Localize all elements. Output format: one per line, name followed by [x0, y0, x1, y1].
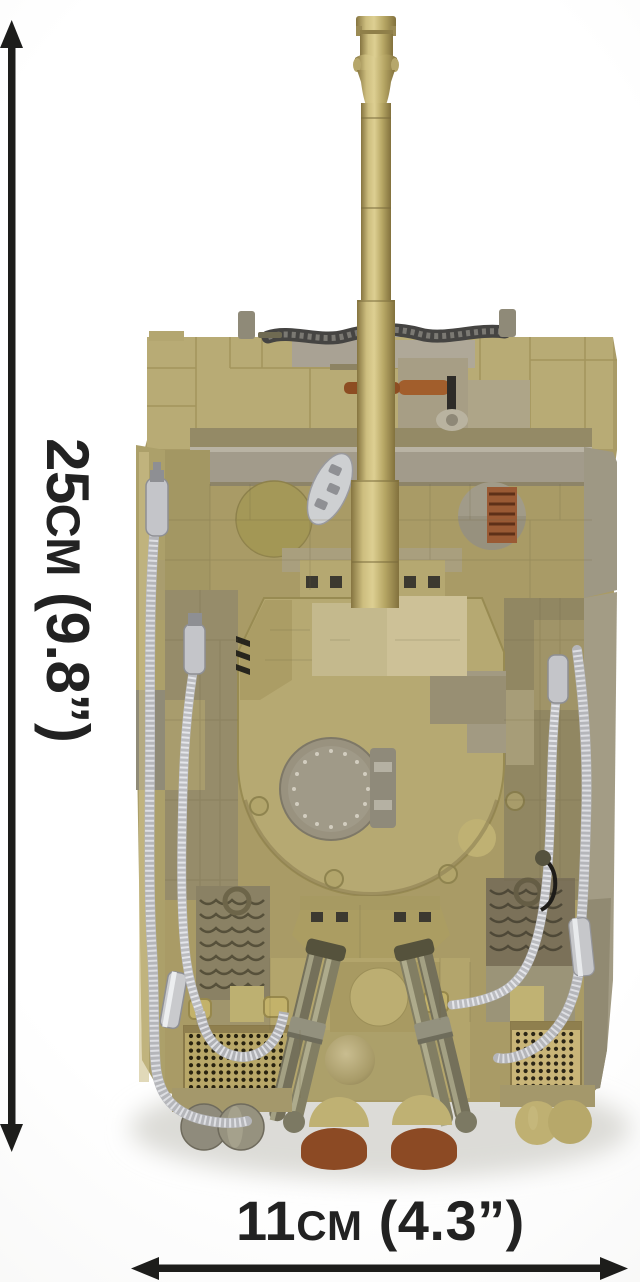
svg-text:11CM (4.3”): 11CM (4.3”): [236, 1189, 525, 1252]
svg-text:25CM (9.8”): 25CM (9.8”): [34, 438, 101, 742]
